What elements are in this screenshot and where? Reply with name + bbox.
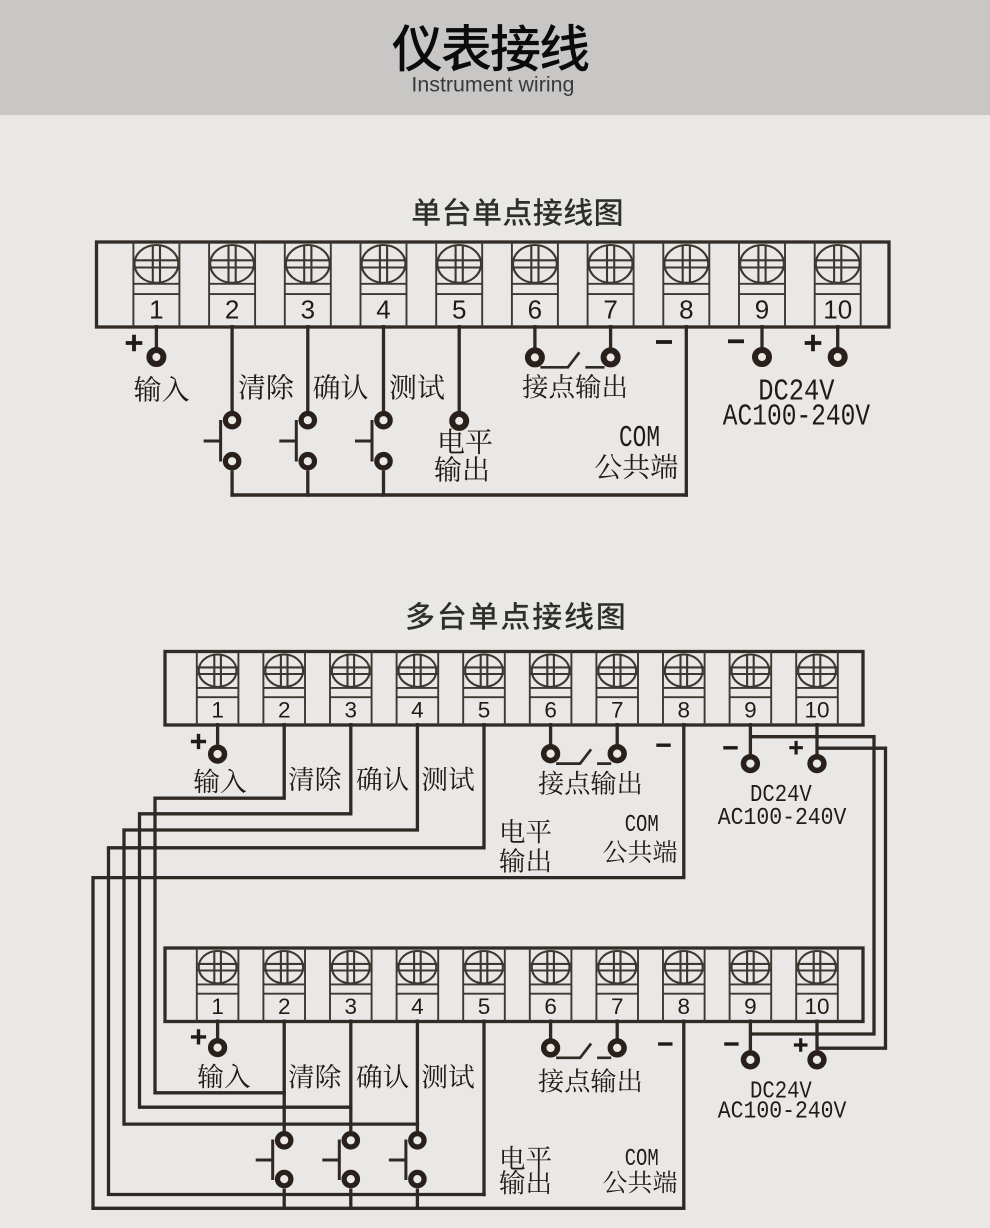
svg-text:2: 2 [225,295,239,325]
svg-text:9: 9 [744,994,757,1019]
svg-text:2: 2 [278,994,291,1019]
svg-text:5: 5 [452,295,466,325]
svg-text:10: 10 [804,697,829,722]
svg-text:4: 4 [376,295,390,325]
svg-text:7: 7 [611,994,624,1019]
svg-text:6: 6 [544,697,557,722]
svg-text:8: 8 [678,994,691,1019]
svg-text:10: 10 [823,295,852,325]
svg-text:COM: COM [619,421,660,456]
svg-text:AC100-240V: AC100-240V [718,1099,847,1126]
svg-text:COM: COM [625,812,659,839]
svg-text:AC100-240V: AC100-240V [723,400,871,435]
svg-text:9: 9 [744,697,757,722]
svg-text:5: 5 [478,994,491,1019]
svg-text:3: 3 [345,697,358,722]
svg-text:6: 6 [528,295,542,325]
svg-text:1: 1 [211,697,224,722]
svg-text:Instrument wiring: Instrument wiring [411,74,574,97]
svg-text:6: 6 [544,994,557,1019]
svg-text:7: 7 [611,697,624,722]
svg-text:10: 10 [804,994,829,1019]
svg-text:4: 4 [411,994,424,1019]
svg-text:7: 7 [603,295,617,325]
svg-text:COM: COM [625,1146,659,1173]
svg-text:3: 3 [301,295,315,325]
svg-text:8: 8 [678,697,691,722]
svg-text:8: 8 [679,295,693,325]
svg-text:5: 5 [478,697,491,722]
svg-text:9: 9 [755,295,769,325]
svg-text:1: 1 [149,295,163,325]
svg-text:3: 3 [345,994,358,1019]
svg-text:1: 1 [211,994,224,1019]
svg-text:4: 4 [411,697,424,722]
svg-text:2: 2 [278,697,291,722]
svg-text:AC100-240V: AC100-240V [718,805,847,832]
